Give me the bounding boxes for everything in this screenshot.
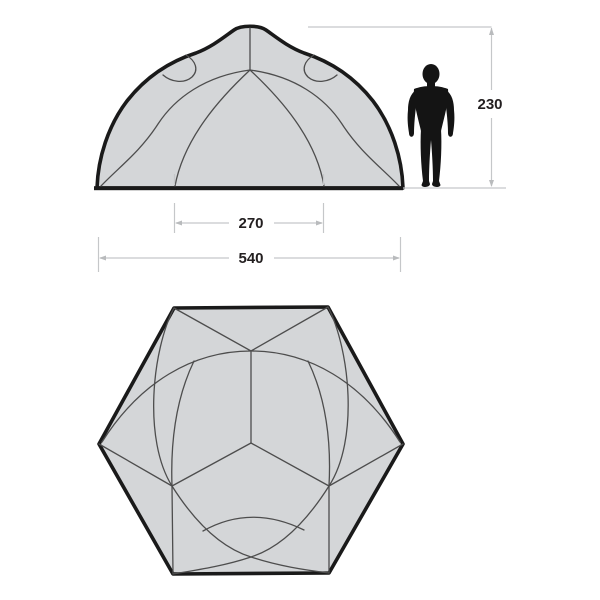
- ground-line: [94, 186, 403, 190]
- arrow-right-icon: [393, 256, 400, 261]
- arrow-left-icon: [175, 221, 182, 226]
- height-label: 230: [477, 96, 502, 113]
- dimension-outer-width: 540: [99, 237, 401, 272]
- floor-plan: [99, 307, 403, 574]
- arrow-up-icon: [489, 28, 494, 36]
- figure-arm-right: [444, 90, 454, 137]
- outer-width-label: 540: [238, 250, 263, 267]
- tent-dimensions-diagram: 230 270 540: [0, 0, 600, 600]
- inner-width-label: 270: [238, 215, 263, 232]
- arrow-left-icon: [99, 256, 106, 261]
- arrow-right-icon: [316, 221, 323, 226]
- figure-leg-right: [431, 129, 441, 187]
- side-view: 230 270 540: [94, 26, 506, 272]
- human-silhouette-icon: [408, 64, 455, 187]
- figure-leg-left: [421, 129, 431, 187]
- arrow-down-icon: [489, 180, 494, 187]
- figure-torso: [414, 86, 448, 131]
- diagram-svg: 230 270 540: [0, 0, 600, 600]
- figure-arm-left: [408, 90, 418, 137]
